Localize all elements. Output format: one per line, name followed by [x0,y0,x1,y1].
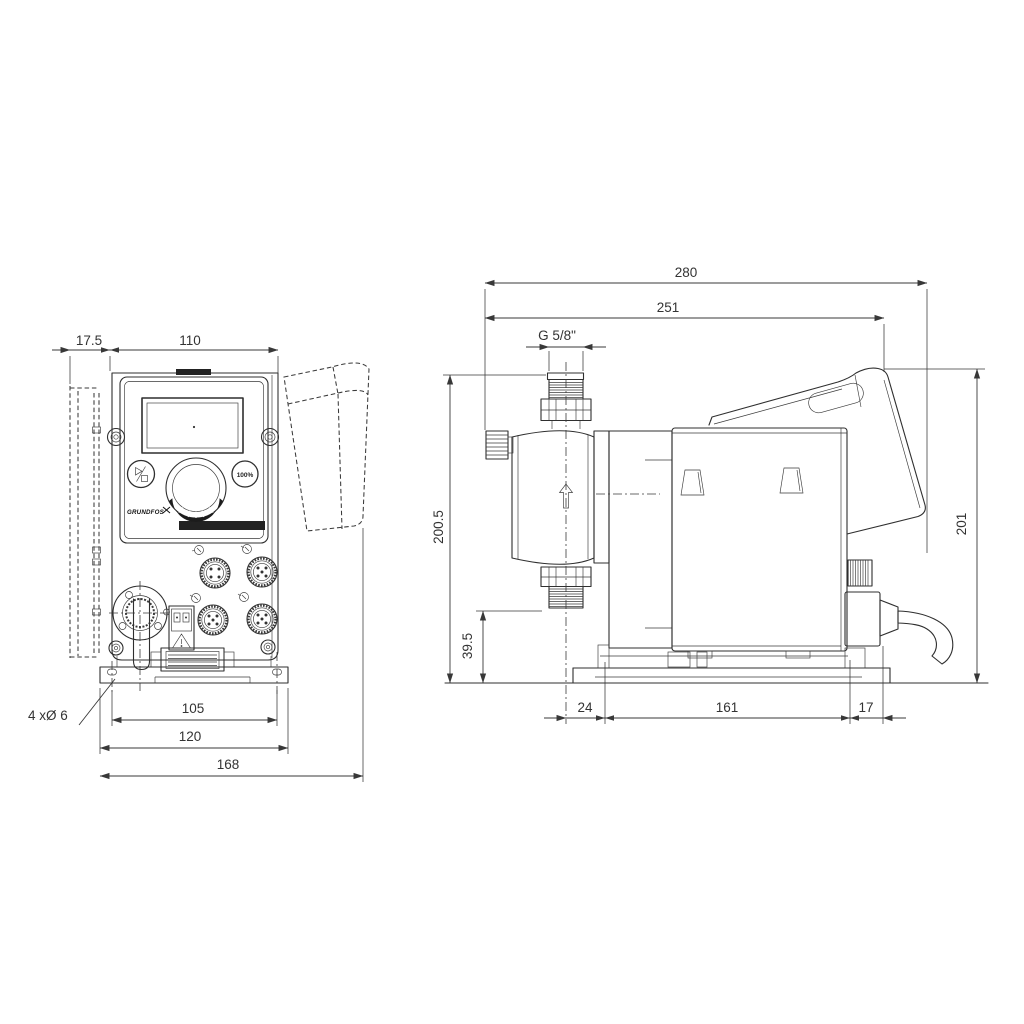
mounting-holes-callout: 4 xØ 6 [28,679,115,725]
dimension-body-width: 110 [110,333,278,424]
dim-label-17-5: 17.5 [76,333,102,348]
thread-label: G 5/8" [538,328,576,343]
vent-valve-knob[interactable] [486,431,513,459]
connector-panel [169,545,277,651]
panel-screw-right [262,429,279,446]
dim-label-110: 110 [179,333,201,348]
dim-label-39-5: 39.5 [460,633,475,659]
dim-label-24: 24 [577,700,593,715]
dimension-wall-offset: 17.5 [52,333,110,384]
motor-housing-side [596,428,953,664]
m12-connector[interactable] [247,604,277,634]
housing-screw [261,640,275,654]
dimension-overall-width: 168 [100,528,363,782]
dim-label-201: 201 [954,513,969,536]
control-panel: 100% GRUNDFOS [108,377,279,543]
start-stop-button[interactable] [128,461,155,488]
dimension-overall-height: 200.5 [431,375,546,683]
cable-gland-thread [848,560,872,586]
display-dot [193,426,195,428]
power-cable [898,611,953,664]
logo-text: GRUNDFOS [127,509,165,516]
stop-icon [142,476,148,482]
dimensions-side: 280 251 G 5/8" 200.5 [431,265,985,724]
click-wheel[interactable] [166,458,226,522]
housing-screw [109,641,123,655]
head-flange-plate [594,431,609,563]
side-view: 280 251 G 5/8" 200.5 [431,265,988,724]
holes-label: 4 xØ 6 [28,708,68,723]
dim-label-251: 251 [657,300,680,315]
brand-logo: GRUNDFOS [127,507,170,516]
control-cube-side [709,368,925,534]
warning-label [169,606,194,650]
hundred-percent-label: 100% [237,472,254,479]
panel-hinge-strip [179,521,265,530]
m12-connector[interactable] [247,557,277,587]
drawing-page: 100% GRUNDFOS [0,0,1024,1024]
dim-label-168: 168 [217,757,240,772]
dimension-hole-pitch: 105 [112,690,277,726]
technical-drawing: 100% GRUNDFOS [0,0,1024,1024]
dim-label-105: 105 [182,701,205,716]
cable-bushing [880,600,898,636]
mains-connector-box [845,592,880,646]
dim-label-120: 120 [179,729,202,744]
dim-label-161: 161 [716,700,739,715]
top-tab [176,369,211,375]
dimension-outlet-height: 39.5 [460,611,542,683]
dim-label-280: 280 [675,265,698,280]
dimension-foot-width: 120 [100,688,288,754]
wall-bracket-hidden-lines [70,386,101,658]
panel-screw-left [108,429,125,446]
connector-symbol-icons [190,545,252,603]
dosing-head-front [109,581,172,691]
hundred-percent-button[interactable]: 100% [232,461,258,487]
dim-label-17: 17 [858,700,873,715]
display [142,398,243,453]
dim-label-200-5: 200.5 [431,510,446,544]
m12-connector[interactable] [200,558,230,588]
dimension-overall-depth: 280 [485,265,927,553]
m12-connector[interactable] [198,605,228,635]
dosing-head-side [486,362,609,724]
phantom-control-cube [284,363,369,531]
front-view: 100% GRUNDFOS [28,333,369,782]
head-body [512,431,594,565]
